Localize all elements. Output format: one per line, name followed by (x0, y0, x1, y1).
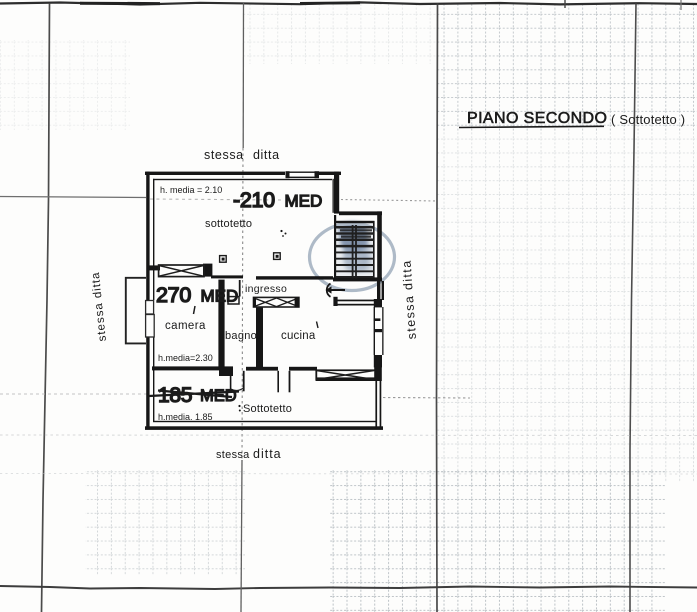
svg-text:h.media=2.30: h.media=2.30 (158, 353, 213, 363)
svg-text:-210: -210 (233, 188, 275, 212)
svg-text:cucina: cucina (281, 330, 316, 342)
svg-text:sottotetto: sottotetto (205, 218, 252, 230)
svg-text:PIANO SECONDO: PIANO SECONDO (467, 110, 607, 127)
svg-text:Sottotetto: Sottotetto (243, 403, 292, 415)
svg-text:camera: camera (165, 320, 206, 332)
svg-text:( Sottotetto ): ( Sottotetto ) (611, 112, 685, 127)
svg-text:270: 270 (156, 283, 191, 307)
svg-text:ditta: ditta (253, 447, 282, 461)
svg-text:MED: MED (201, 287, 239, 306)
svg-text:bagno: bagno (225, 330, 257, 342)
svg-text:ditta: ditta (253, 148, 280, 162)
svg-text:h.media. 1.85: h.media. 1.85 (158, 412, 213, 422)
svg-text:ingresso: ingresso (245, 283, 287, 295)
svg-text:stessa: stessa (216, 449, 250, 461)
svg-text:h. media = 2.10: h. media = 2.10 (160, 185, 222, 195)
svg-text:stessa: stessa (204, 148, 244, 162)
svg-text:MED: MED (285, 192, 323, 211)
